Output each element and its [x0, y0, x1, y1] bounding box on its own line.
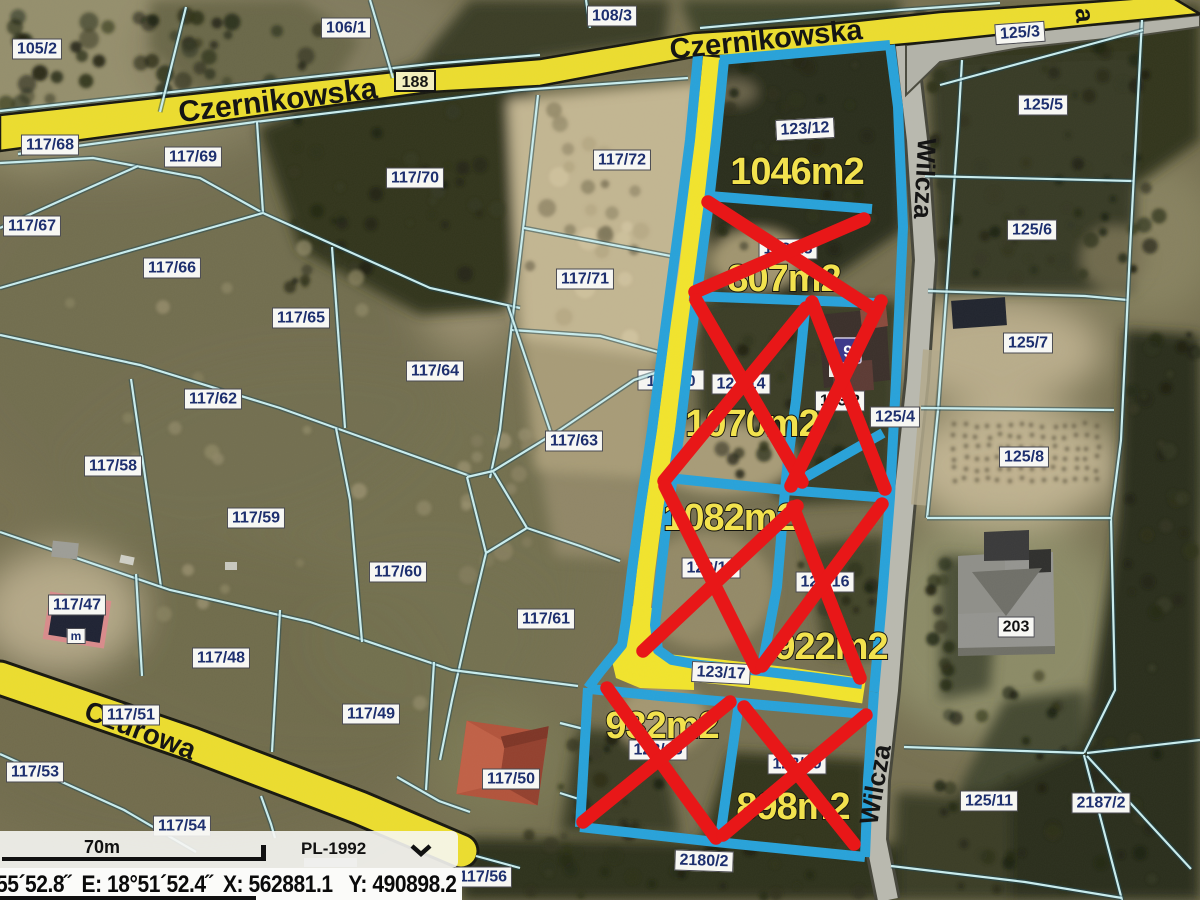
svg-text:1046m2: 1046m2 — [730, 151, 863, 193]
